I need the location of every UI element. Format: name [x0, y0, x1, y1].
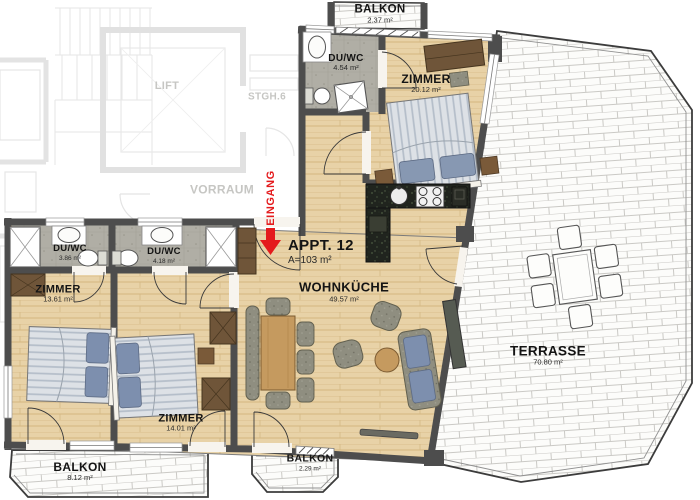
stool: [449, 71, 469, 87]
room-name: ZIMMER: [35, 284, 80, 296]
room-label-zimmer-bottom: ZIMMER 14.01 m²: [158, 413, 203, 434]
window: [130, 443, 182, 452]
terrace-chair: [527, 253, 552, 278]
room-label-terrasse: TERRASSE 70.80 m²: [510, 343, 586, 367]
hall-cabinets: [250, 55, 298, 90]
toilet-tank: [305, 88, 313, 104]
wall-pillar: [424, 450, 444, 466]
toilet: [314, 88, 330, 104]
terrace-chair: [594, 244, 619, 269]
room-area: 8.12 m²: [53, 475, 106, 483]
room-name: DU/WC: [147, 246, 181, 257]
sofa-cushion: [403, 335, 431, 369]
balcony-left-floor: [10, 450, 208, 497]
chair: [297, 350, 314, 374]
room-label-wohnkueche: WOHNKÜCHE 49.57 m²: [299, 281, 389, 304]
common-label-stairwell: STGH.6: [248, 91, 286, 102]
room-name: TERRASSE: [510, 343, 586, 358]
room-area: 70.80 m²: [510, 358, 586, 366]
entrance-label: EINGANG: [265, 170, 277, 226]
terrace-chair: [557, 225, 582, 250]
kitchen-sink: [391, 188, 408, 205]
pillow: [440, 153, 476, 179]
room-area: 49.57 m²: [299, 295, 389, 303]
room-label-duwc-mid: DU/WC 4.18 m²: [147, 247, 181, 265]
room-name: BALKON: [355, 3, 406, 15]
washbasin: [309, 36, 326, 58]
pillow: [399, 158, 435, 184]
room-area: 2.37 m²: [355, 16, 406, 24]
dining-table: [261, 316, 295, 390]
window: [4, 366, 12, 418]
apartment-number: APPT. 12: [288, 237, 354, 254]
dining-bench: [246, 306, 259, 400]
room-name: DU/WC: [53, 243, 87, 254]
room-name: BALKON: [53, 460, 106, 474]
room-name: ZIMMER: [158, 413, 203, 425]
nightstand: [480, 156, 499, 175]
common-label-hall: VORRAUM: [190, 183, 254, 196]
chair: [266, 298, 290, 315]
room-area: 20.12 m²: [401, 87, 450, 95]
chair: [297, 322, 314, 346]
room-name: BALKON: [287, 452, 334, 464]
pillow: [116, 343, 140, 374]
room-label-balkon-mid: BALKON 2.29 m²: [287, 453, 334, 472]
washbasin: [58, 228, 80, 243]
side-table: [375, 348, 399, 372]
room-label-balkon-top: BALKON 2.37 m²: [355, 3, 406, 24]
room-label-duwc-top: DU/WC 4.54 m²: [328, 53, 363, 73]
common-label-lift: LIFT: [155, 80, 179, 92]
kitchen-appliance: [369, 216, 387, 232]
toilet-tank: [98, 251, 107, 265]
room-name: WOHNKÜCHE: [299, 280, 389, 295]
pillow: [118, 377, 142, 408]
floor-plan-page: { "plan": { "apartment_label": "APPT. 12…: [0, 0, 700, 500]
room-area: 4.54 m²: [328, 64, 363, 72]
washbasin: [151, 228, 173, 243]
pillow: [85, 367, 108, 398]
terrace-chair: [568, 304, 593, 329]
apartment-label: APPT. 12 A=103 m²: [288, 238, 354, 266]
faucet: [397, 186, 401, 190]
room-label-zimmer-left: ZIMMER 13.61 m²: [35, 284, 80, 305]
chair: [266, 392, 290, 409]
window: [70, 441, 114, 450]
window: [46, 218, 84, 226]
wall-pillar: [456, 226, 474, 242]
room-label-duwc-left: DU/WC 3.86 m²: [53, 244, 87, 262]
room-area: 13.61 m²: [35, 296, 80, 304]
window: [138, 218, 182, 226]
room-area: 14.01 m²: [158, 425, 203, 433]
pillow: [86, 333, 109, 364]
room-label-balkon-left: BALKON 8.12 m²: [53, 461, 106, 483]
terrace-chair: [598, 274, 623, 299]
toilet-tank: [112, 251, 121, 265]
room-area: 4.18 m²: [147, 258, 181, 265]
room-label-zimmer-top: ZIMMER 20.12 m²: [401, 73, 450, 95]
room-area: 3.86 m²: [53, 255, 87, 262]
chair: [297, 378, 314, 402]
room-area: 2.29 m²: [287, 465, 334, 472]
sofa-cushion: [408, 369, 436, 403]
nightstand: [198, 348, 214, 364]
apartment-area: A=103 m²: [288, 255, 354, 266]
entry-closet: [238, 228, 256, 274]
terrace-chair: [531, 283, 556, 308]
room-name: ZIMMER: [401, 72, 450, 86]
